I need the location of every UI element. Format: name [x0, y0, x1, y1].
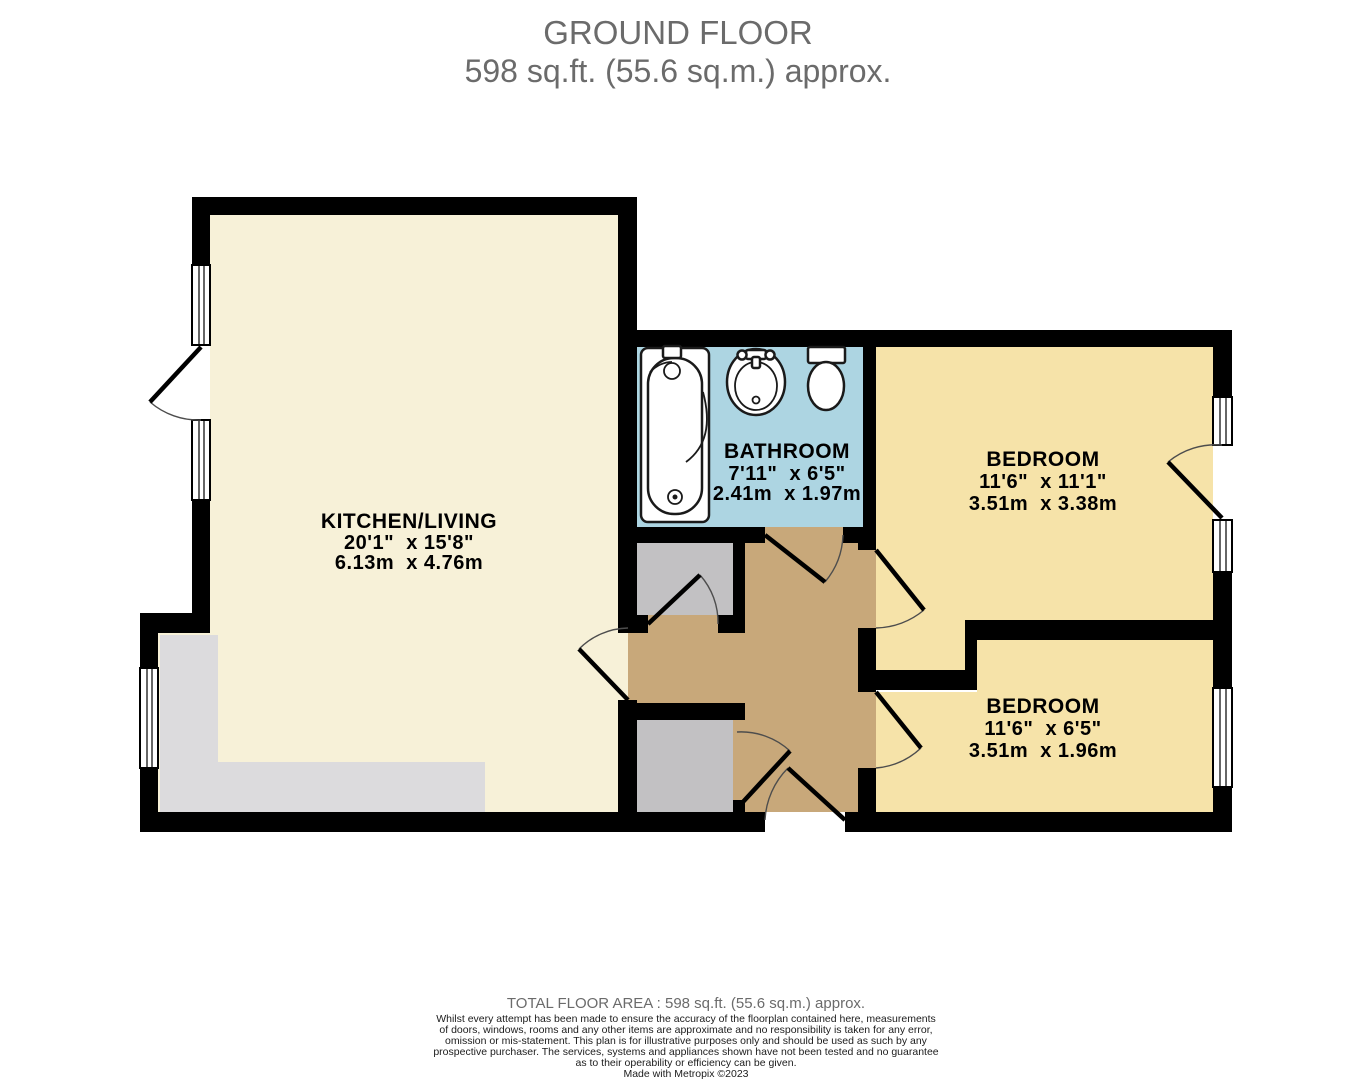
- sink-icon: [727, 349, 785, 415]
- window-kitchen-upper: [192, 265, 210, 345]
- room-dim-imperial: 20'1" x 15'8": [344, 532, 474, 554]
- room-name: KITCHEN/LIVING: [321, 510, 497, 533]
- page-title: GROUND FLOOR: [543, 14, 813, 51]
- room-dim-metric: 3.51m x 3.38m: [969, 493, 1117, 515]
- bathtub-icon: [641, 346, 709, 522]
- room-dim-imperial: 11'6" x 11'1": [979, 471, 1107, 493]
- total-floor-area: TOTAL FLOOR AREA : 598 sq.ft. (55.6 sq.m…: [507, 995, 865, 1012]
- closet-top-floor: [637, 543, 733, 615]
- room-dim-metric: 6.13m x 4.76m: [335, 552, 483, 574]
- room-dim-metric: 3.51m x 1.96m: [969, 740, 1117, 762]
- room-name: BATHROOM: [724, 440, 850, 463]
- window-bedroom1-lower: [1213, 520, 1232, 572]
- room-dim-imperial: 7'11" x 6'5": [728, 463, 845, 485]
- bedroom1-label: BEDROOM 11'6" x 11'1" 3.51m x 3.38m: [969, 448, 1117, 515]
- window-bedroom1-upper: [1213, 397, 1232, 445]
- window-kitchen-side: [140, 668, 158, 768]
- room-name: BEDROOM: [986, 695, 1099, 718]
- page-subtitle: 598 sq.ft. (55.6 sq.m.) approx.: [465, 53, 892, 89]
- window-kitchen-lower: [192, 420, 210, 500]
- floorplan-page: GROUND FLOOR 598 sq.ft. (55.6 sq.m.) app…: [0, 0, 1372, 1080]
- room-dim-imperial: 11'6" x 6'5": [984, 718, 1101, 740]
- credit-line: Made with Metropix ©2023: [623, 1068, 748, 1080]
- bathroom-label: BATHROOM 7'11" x 6'5" 2.41m x 1.97m: [713, 440, 861, 505]
- toilet-icon: [808, 347, 845, 410]
- room-dim-metric: 2.41m x 1.97m: [713, 483, 861, 505]
- kitchen-living-label: KITCHEN/LIVING 20'1" x 15'8" 6.13m x 4.7…: [321, 510, 497, 574]
- room-name: BEDROOM: [986, 448, 1099, 471]
- window-bedroom2: [1213, 688, 1232, 787]
- floorplan-canvas: GROUND FLOOR 598 sq.ft. (55.6 sq.m.) app…: [0, 0, 1372, 1080]
- footer: TOTAL FLOOR AREA : 598 sq.ft. (55.6 sq.m…: [433, 995, 938, 1080]
- closet-bottom-floor: [637, 720, 733, 812]
- door-kitchen-exterior: [150, 347, 201, 420]
- bedroom2-label: BEDROOM 11'6" x 6'5" 3.51m x 1.96m: [969, 695, 1117, 762]
